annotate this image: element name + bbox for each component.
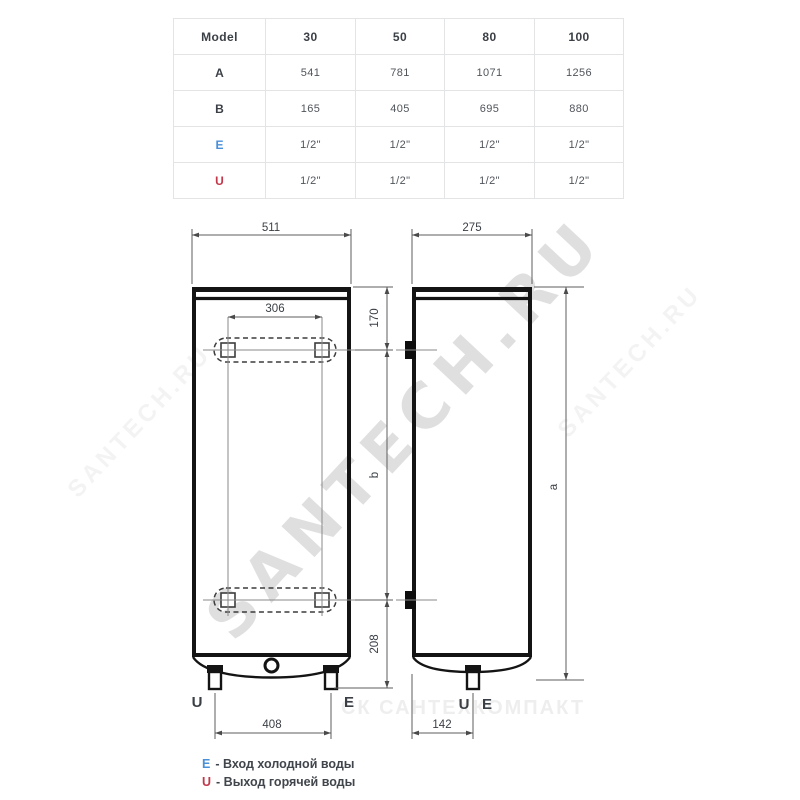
- dim-label-pipe-span: 408: [262, 719, 281, 731]
- legend-item-inlet: E- Вход холодной воды: [202, 755, 355, 773]
- cell-e-50: 1/2": [356, 127, 445, 163]
- dim-label-pipe-offset: 142: [432, 719, 451, 731]
- dim-pipe-span: 408: [215, 693, 331, 739]
- front-inlet-label: E: [344, 694, 354, 711]
- col-header-30: 30: [266, 19, 356, 55]
- cell-e-80: 1/2": [445, 127, 535, 163]
- dim-label-bracket-to-feet: 208: [369, 634, 381, 653]
- legend: E- Вход холодной воды U- Выход горячей в…: [202, 755, 355, 791]
- table-header-row: Model 30 50 80 100: [174, 19, 624, 55]
- hot-pipe: [209, 672, 221, 689]
- cell-u-80: 1/2": [445, 163, 535, 199]
- dim-bracket-spacing: b: [355, 350, 393, 600]
- legend-text-outlet: - Выход горячей воды: [216, 775, 355, 789]
- dim-label-total-height: a: [548, 483, 560, 490]
- side-pipe: [467, 672, 479, 689]
- cell-e-30: 1/2": [266, 127, 356, 163]
- side-outlet-label: U: [459, 696, 470, 713]
- dim-label-bracket-span: 306: [265, 303, 284, 315]
- mounting-bracket-upper: [203, 338, 358, 362]
- dim-total-height: a: [534, 287, 584, 680]
- cell-b-100: 880: [535, 91, 624, 127]
- cell-u-100: 1/2": [535, 163, 624, 199]
- cell-b-30: 165: [266, 91, 356, 127]
- cell-b-80: 695: [445, 91, 535, 127]
- dim-bracket-to-feet: 208: [334, 600, 393, 688]
- cell-a-50: 781: [356, 55, 445, 91]
- col-header-50: 50: [356, 19, 445, 55]
- dim-bracket-span: 306: [228, 303, 322, 317]
- col-header-100: 100: [535, 19, 624, 55]
- legend-symbol-u: U: [202, 773, 211, 791]
- table-row-u: U 1/2" 1/2" 1/2" 1/2": [174, 163, 624, 199]
- dimension-table: Model 30 50 80 100 A 541 781 1071 1256 B…: [173, 18, 624, 199]
- front-outlet-label: U: [192, 694, 203, 711]
- row-label-a: A: [174, 55, 266, 91]
- dim-label-top-to-bracket: 170: [369, 308, 381, 327]
- spec-sheet: SANTECH.RU SANTECH.RU SANTECH.RU СК САНТ…: [0, 0, 800, 800]
- legend-item-outlet: U- Выход горячей воды: [202, 773, 355, 791]
- cell-u-50: 1/2": [356, 163, 445, 199]
- cell-e-100: 1/2": [535, 127, 624, 163]
- row-label-e: E: [174, 127, 266, 163]
- row-label-u: U: [174, 163, 266, 199]
- drain-outlet: [265, 659, 278, 672]
- dim-label-front-width: 511: [262, 222, 280, 234]
- dim-side-depth: 275: [412, 222, 532, 284]
- cell-a-30: 541: [266, 55, 356, 91]
- cell-a-80: 1071: [445, 55, 535, 91]
- cold-pipe: [325, 672, 337, 689]
- cell-a-100: 1256: [535, 55, 624, 91]
- cell-u-30: 1/2": [266, 163, 356, 199]
- dim-top-to-bracket: 170: [353, 287, 393, 350]
- mounting-bracket-lower: [203, 588, 358, 612]
- col-header-model: Model: [174, 19, 266, 55]
- side-view: [396, 287, 532, 689]
- legend-symbol-e: E: [202, 755, 210, 773]
- table-row-b: B 165 405 695 880: [174, 91, 624, 127]
- dim-front-width: 511: [192, 222, 351, 284]
- col-header-80: 80: [445, 19, 535, 55]
- dim-label-bracket-spacing: b: [369, 472, 381, 478]
- cell-b-50: 405: [356, 91, 445, 127]
- table-row-a: A 541 781 1071 1256: [174, 55, 624, 91]
- table-row-e: E 1/2" 1/2" 1/2" 1/2": [174, 127, 624, 163]
- side-inlet-label: E: [482, 696, 492, 713]
- legend-text-inlet: - Вход холодной воды: [215, 757, 354, 771]
- dim-label-side-depth: 275: [462, 222, 481, 234]
- row-label-b: B: [174, 91, 266, 127]
